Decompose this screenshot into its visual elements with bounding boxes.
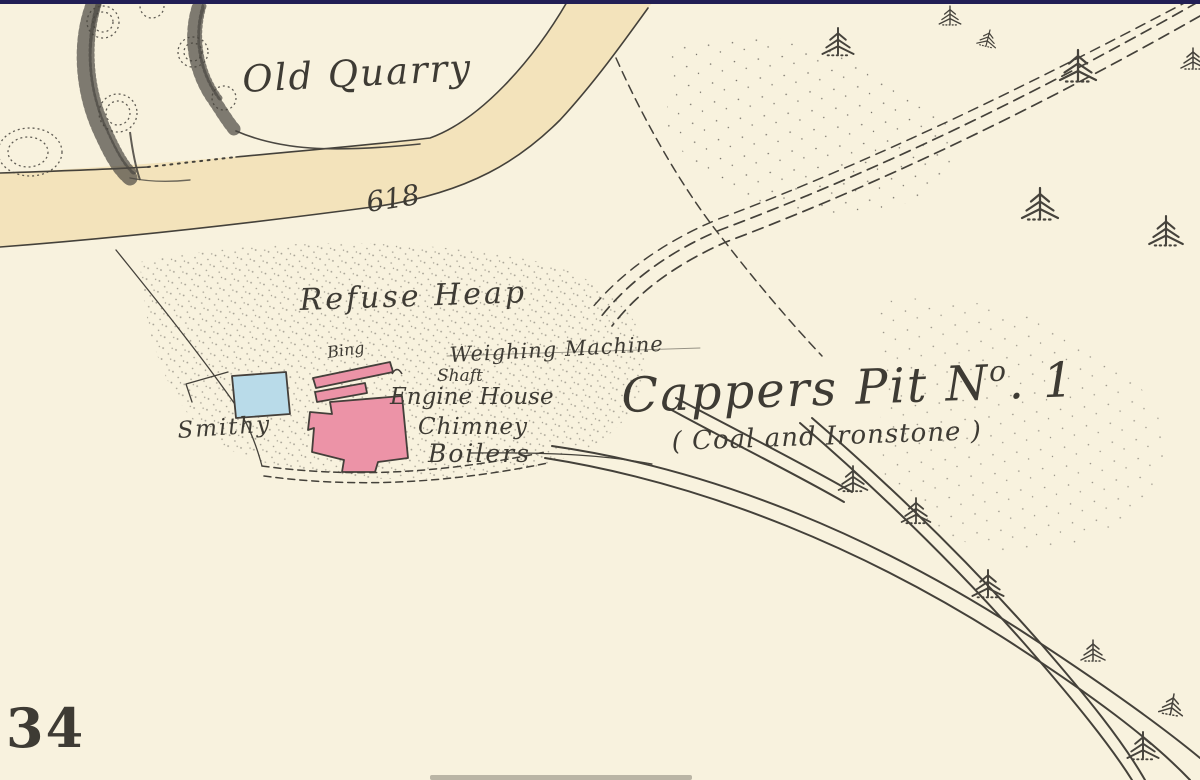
top-border-strip [0, 0, 1200, 4]
label-sheet-number: 34 [6, 696, 85, 760]
historical-map-canvas: Old Quarry 618 Refuse Heap Bing Weighing… [0, 0, 1200, 780]
bottom-edge-smudge [430, 775, 692, 780]
label-engine-house: Engine House [389, 384, 554, 410]
building-smithy [232, 372, 290, 418]
label-chimney: Chimney [418, 414, 528, 440]
pit-no-rest: . 1 [1007, 352, 1076, 410]
label-boilers: Boilers [427, 439, 531, 468]
pit-no-superscript: o [988, 355, 1008, 389]
map-svg: Old Quarry 618 Refuse Heap Bing Weighing… [0, 0, 1200, 780]
label-shaft: Shaft [437, 366, 483, 386]
